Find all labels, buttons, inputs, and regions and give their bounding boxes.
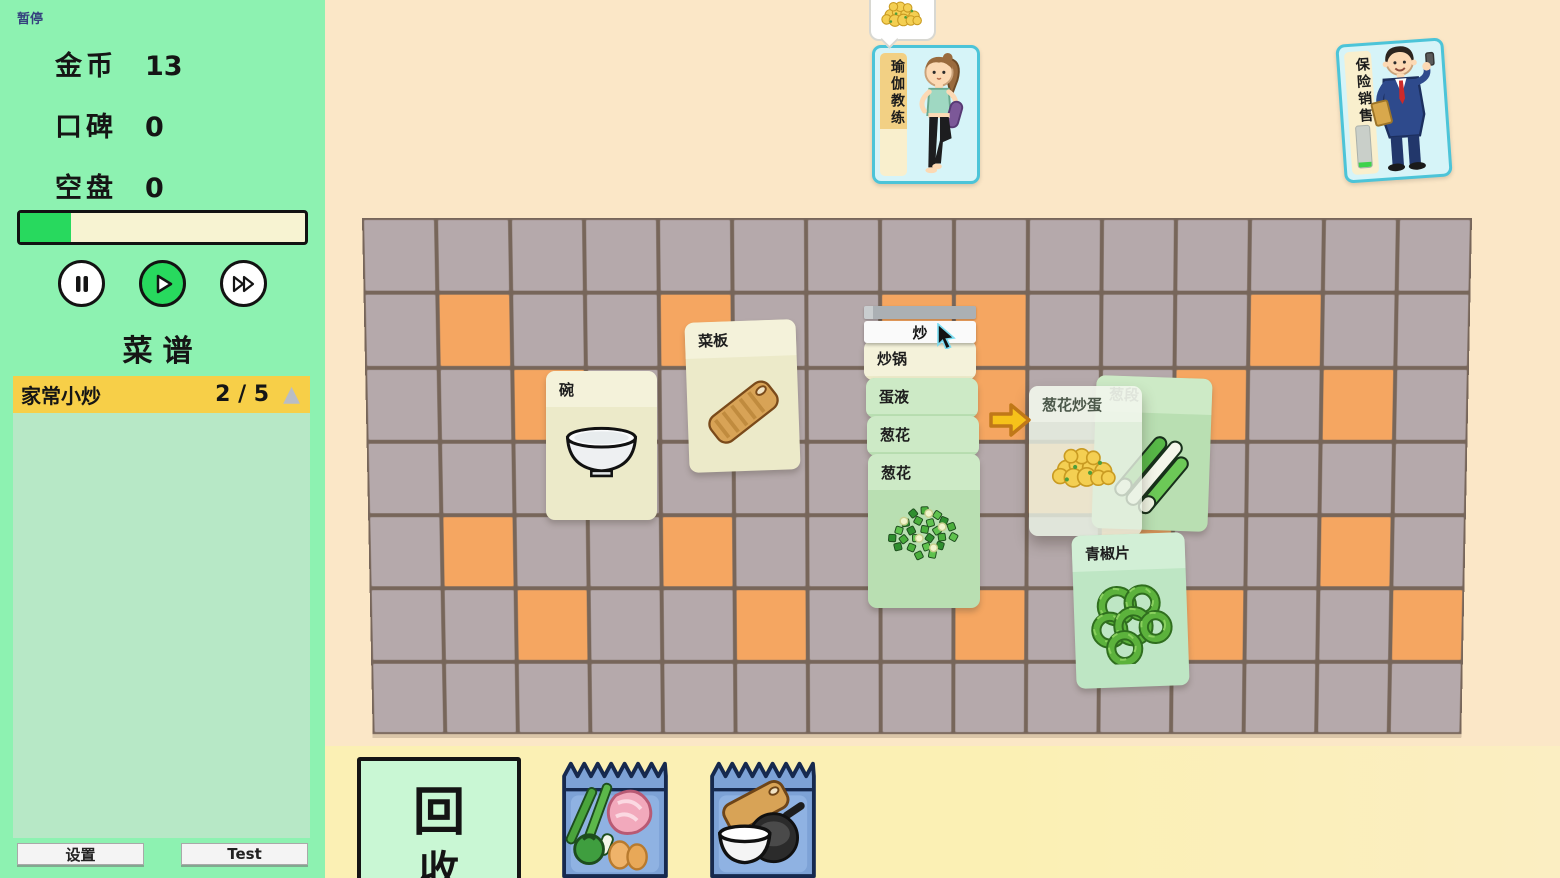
board-card-scallion-bits-1[interactable]: 葱花 <box>867 416 979 456</box>
floor-tile <box>1321 444 1391 514</box>
cutting-board-art <box>699 368 787 456</box>
sidebar-buttons: 设置 Test <box>0 843 325 865</box>
floor-tile <box>1246 591 1316 660</box>
reputation-value: 0 <box>145 112 164 143</box>
pause-indicator: 暂停 <box>17 8 43 27</box>
floor-tile <box>519 663 589 732</box>
recipe-title: 菜谱 <box>0 326 325 370</box>
floor-tile-highlight <box>1250 295 1321 366</box>
empty-plates-value: 0 <box>145 173 164 204</box>
floor-tile <box>1393 517 1463 586</box>
floor-tile <box>513 295 584 366</box>
floor-tile-highlight <box>1320 517 1390 586</box>
floor-tile <box>369 444 440 514</box>
stats-panel: 金币 13 口碑 0 空盘 0 <box>55 44 285 227</box>
floor-tile <box>1103 295 1173 366</box>
floor-tile <box>1249 369 1319 439</box>
floor-tile <box>1251 220 1322 291</box>
cook-progress-bar <box>864 306 976 319</box>
floor-tile <box>441 369 512 439</box>
pause-button[interactable] <box>58 260 105 307</box>
floor-tile <box>1103 220 1173 291</box>
card-title: 葱花炒蛋 <box>1029 386 1142 422</box>
pack-tools-art <box>706 757 820 878</box>
board-card-scallion-bits-2[interactable]: 葱花 <box>868 454 980 608</box>
floor-tile <box>956 220 1026 291</box>
scrambled-egg-icon <box>875 0 933 28</box>
play-button[interactable] <box>139 260 186 307</box>
floor-tile <box>517 517 587 586</box>
board-card-result-preview[interactable]: 葱花炒蛋 <box>1029 386 1142 536</box>
mouse-cursor-icon <box>936 323 960 349</box>
card-title: 葱花 <box>868 454 980 490</box>
floor-tile <box>1029 295 1099 366</box>
floor-tile <box>1246 663 1316 732</box>
floor-tile <box>512 220 583 291</box>
floor-tile <box>442 444 512 514</box>
recycle-glyph: 回 <box>361 787 517 839</box>
floor-tile <box>737 663 806 732</box>
floor-tile <box>1177 220 1248 291</box>
floor-tile <box>808 220 878 291</box>
floor-tile <box>664 663 733 732</box>
floor-tile-highlight <box>737 591 806 660</box>
pause-icon <box>72 274 92 294</box>
customer-card-yoga-coach[interactable]: 瑜伽教练 <box>872 45 980 184</box>
bowl-art <box>559 419 644 480</box>
board-card-cutting-board[interactable]: 菜板 <box>684 319 800 473</box>
floor-tile <box>372 591 442 660</box>
floor-tile-highlight <box>663 517 733 586</box>
board-card-pepper-slices[interactable]: 青椒片 <box>1071 532 1189 689</box>
settings-button[interactable]: 设置 <box>17 843 144 865</box>
test-button[interactable]: Test <box>181 843 308 865</box>
floor-tile <box>1319 591 1389 660</box>
floor-tile <box>364 220 435 291</box>
floor-tile <box>1248 444 1318 514</box>
customer-name: 保险销售 <box>1344 56 1376 126</box>
floor-tile <box>1318 663 1388 732</box>
floor-tile <box>438 220 509 291</box>
floor-tile-highlight <box>439 295 510 366</box>
game-stage: 碗 菜板 炒锅蛋液葱花葱花葱段 葱花炒蛋青椒片 <box>0 0 1560 878</box>
coins-label: 金币 <box>55 44 145 83</box>
recycle-glyph-hidden: 收 <box>361 851 517 878</box>
floor-tile <box>1397 295 1468 366</box>
card-pack-tools[interactable] <box>706 757 820 878</box>
sidebar: 暂停 金币 13 口碑 0 空盘 0 <box>0 0 325 878</box>
card-title: 菜板 <box>684 319 796 359</box>
floor-tile-highlight <box>443 517 513 586</box>
pepper-rings-art <box>1086 580 1176 665</box>
floor-tile <box>883 663 952 732</box>
floor-tile <box>445 591 515 660</box>
card-title: 蛋液 <box>866 378 978 414</box>
floor-tile <box>591 663 661 732</box>
floor-tile <box>734 220 804 291</box>
floor-tile <box>736 517 806 586</box>
floor-tile <box>1325 220 1396 291</box>
floor-tile <box>1030 220 1100 291</box>
coins-value: 13 <box>145 51 183 82</box>
floor-tile-highlight <box>1392 591 1462 660</box>
floor-tile <box>586 220 657 291</box>
stat-row-reputation: 口碑 0 <box>55 105 285 144</box>
craft-result-arrow-icon <box>987 397 1033 447</box>
fast-forward-icon <box>232 274 256 294</box>
floor-tile <box>366 295 437 366</box>
empty-plates-label: 空盘 <box>55 166 145 205</box>
chopped-scallion-art <box>881 502 967 563</box>
recycle-card[interactable]: 回 收 <box>357 757 521 878</box>
floor-tile <box>1247 517 1317 586</box>
floor-tile <box>882 220 952 291</box>
floor-tile <box>664 591 734 660</box>
floor-tile <box>446 663 516 732</box>
collapse-arrow-icon[interactable]: ▲ <box>283 384 300 406</box>
speed-controls <box>0 260 325 307</box>
floor-tile <box>1396 369 1467 439</box>
fast-forward-button[interactable] <box>220 260 267 307</box>
board-card-egg-liquid[interactable]: 蛋液 <box>866 378 978 418</box>
card-title: 青椒片 <box>1071 532 1185 572</box>
level-progress-bar <box>17 210 308 245</box>
floor-tile <box>660 220 730 291</box>
play-icon <box>152 273 174 295</box>
reputation-label: 口碑 <box>55 105 145 144</box>
recipe-row[interactable]: 家常小炒 2 / 5 ▲ <box>13 376 310 413</box>
stat-row-coins: 金币 13 <box>55 44 285 83</box>
board-card-bowl[interactable]: 碗 <box>546 371 657 520</box>
pack-food-art <box>558 757 672 878</box>
card-title: 碗 <box>546 371 657 407</box>
customer-name: 瑜伽教练 <box>880 59 907 127</box>
floor-tile <box>373 663 443 732</box>
cook-progress-fill <box>864 306 873 319</box>
floor-tile <box>591 591 661 660</box>
stat-row-empty-plates: 空盘 0 <box>55 166 285 205</box>
customer-card-insurance-sales[interactable]: 保险销售 <box>1335 37 1452 183</box>
floor-tile <box>367 369 438 439</box>
order-bubble <box>869 0 936 41</box>
recipe-name: 家常小炒 <box>21 380 215 409</box>
yoga-coach-illustration <box>903 51 975 179</box>
floor-tile <box>587 295 657 366</box>
floor-tile <box>1324 295 1395 366</box>
floor-tile <box>1177 295 1247 366</box>
recipe-progress: 2 / 5 <box>215 382 269 407</box>
level-progress-fill <box>20 213 71 242</box>
recipe-panel: 家常小炒 2 / 5 ▲ <box>13 376 310 838</box>
floor-tile <box>590 517 660 586</box>
floor-tile-highlight <box>518 591 588 660</box>
scrambled-egg-art <box>1042 438 1129 488</box>
floor-tile <box>810 663 879 732</box>
floor-tile <box>1399 220 1470 291</box>
floor-tile <box>1391 663 1461 732</box>
floor-tile-highlight <box>1323 369 1394 439</box>
floor-tile <box>370 517 440 586</box>
card-pack-ingredients[interactable] <box>558 757 672 878</box>
card-title: 葱花 <box>867 416 979 452</box>
floor-tile <box>1395 444 1466 514</box>
floor-tile <box>955 663 1024 732</box>
